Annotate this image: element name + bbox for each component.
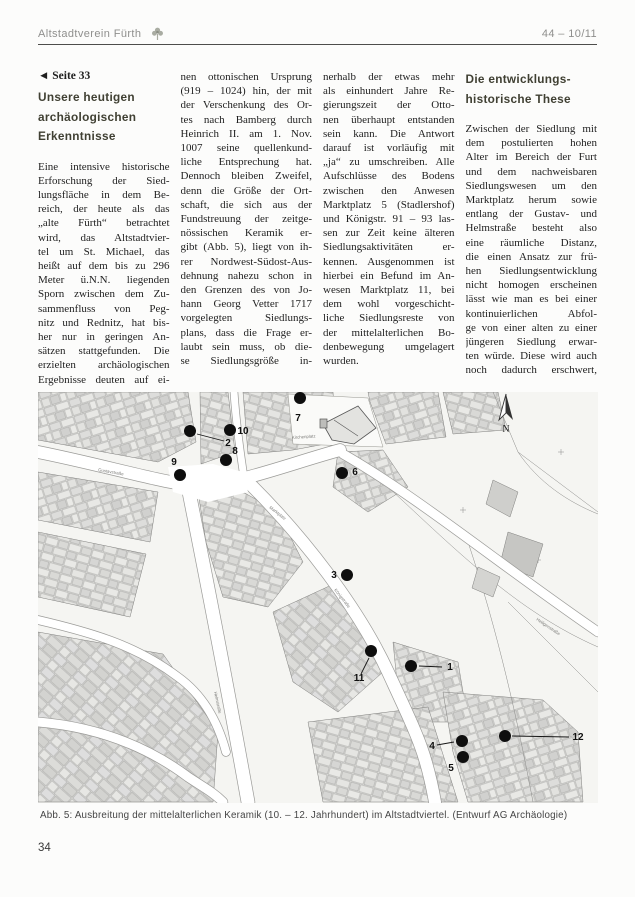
text-line: laubt sein muss, ob die- bbox=[181, 340, 313, 354]
text-line: und Königstr. 91 – 93 las- bbox=[323, 212, 455, 226]
page-header: Altstadtverein Fürth 44 – 10/11 bbox=[38, 24, 597, 45]
text-line: sätzen stattgefunden. Die bbox=[38, 344, 170, 358]
text-line: her nur in geringen An- bbox=[38, 330, 170, 344]
find-spot-dot bbox=[456, 735, 468, 747]
text-line: Marktplatz herum sowie bbox=[466, 193, 598, 207]
text-line: nicht homogen erscheinen bbox=[466, 278, 598, 292]
text-line: kontinuierlichen Abfol- bbox=[466, 307, 598, 321]
text-line: historische These bbox=[466, 90, 598, 110]
text-line: Erforschung der Sied- bbox=[38, 174, 170, 188]
find-spot-dot bbox=[184, 425, 196, 437]
text-line: und dem nachweisbaren bbox=[466, 165, 598, 179]
find-spot-number: 6 bbox=[352, 467, 358, 478]
column-3: nerhalb der etwas mehrals einhundert Jah… bbox=[323, 70, 455, 387]
text-line: als einhundert Jahre Re- bbox=[323, 84, 455, 98]
text-line: zwischen den Anwesen bbox=[323, 184, 455, 198]
text-line: wird, das Altstadtvier- bbox=[38, 231, 170, 245]
text-line: lässt wie man es bei einer bbox=[466, 292, 598, 306]
find-spot-number: 11 bbox=[354, 673, 365, 684]
find-spot-dot bbox=[220, 454, 232, 466]
text-line: darauf ist vorläufig mit bbox=[323, 141, 455, 155]
find-spot-dot bbox=[457, 751, 469, 763]
column-3-text: nerhalb der etwas mehrals einhundert Jah… bbox=[323, 70, 455, 368]
text-line: hen Siedlungsentwicklung bbox=[466, 264, 598, 278]
column-4: Die entwicklungs-historische These Zwisc… bbox=[466, 70, 598, 387]
find-spot-dot bbox=[365, 645, 377, 657]
text-line: ge von einer alten zu einer bbox=[466, 321, 598, 335]
text-line: Eine intensive historische bbox=[38, 160, 170, 174]
text-line: Zwischen der Siedlung mit bbox=[466, 122, 598, 136]
text-line: lungsfläche in dem Be- bbox=[38, 188, 170, 202]
section-heading: Die entwicklungs-historische These bbox=[466, 70, 598, 109]
find-spot-dot bbox=[336, 467, 348, 479]
find-spot-dot bbox=[405, 660, 417, 672]
text-line: noch dadurch erschwert, bbox=[466, 363, 598, 377]
column-2-text: nen ottonischen Ursprung(919 – 1024) hin… bbox=[181, 70, 313, 368]
text-line: ten würde. Diese wird auch bbox=[466, 349, 598, 363]
find-spot-number: 1 bbox=[447, 662, 453, 673]
article-heading: Unsere heutigenarchäologischenErkenntnis… bbox=[38, 88, 170, 147]
column-4-text: Zwischen der Siedlung mitdem postulierte… bbox=[466, 122, 598, 378]
text-line: liche Siedlungsreste von bbox=[323, 311, 455, 325]
text-line: vorgelegten Siedlungs- bbox=[181, 311, 313, 325]
text-line: hann Georg Vetter 1717 bbox=[181, 297, 313, 311]
map-svg: N GustavstraßeMarktplatzKönigstraßeHelms… bbox=[38, 392, 598, 803]
text-line: sein kann. Die Antwort bbox=[323, 127, 455, 141]
page-number: 34 bbox=[38, 842, 51, 854]
text-line: archäologischen bbox=[38, 108, 170, 128]
text-line: Dennoch bleiben Zweifel, bbox=[181, 169, 313, 183]
text-line: plans, dass die Frage er- bbox=[181, 326, 313, 340]
text-line: Sporn zwischen dem Zu- bbox=[38, 287, 170, 301]
find-spot-dot bbox=[341, 569, 353, 581]
text-line: Marktplatz 5 (Stadlershof) bbox=[323, 198, 455, 212]
text-line: sen zur Zeit keine älteren bbox=[323, 226, 455, 240]
text-line: nössischen Keramik er- bbox=[181, 226, 313, 240]
find-spot-number: 12 bbox=[572, 732, 584, 743]
text-line: Heinrich II. am 1. Nov. bbox=[181, 127, 313, 141]
text-line: nitz und Rednitz, hat bis- bbox=[38, 316, 170, 330]
text-line: kennen. Ausgenommen ist bbox=[323, 255, 455, 269]
find-spot-number: 2 bbox=[225, 438, 231, 449]
text-line: hierbei ein Befund im An- bbox=[323, 269, 455, 283]
text-line: se Siedlungsgröße in- bbox=[181, 354, 313, 368]
text-line: tel um St. Michael, das bbox=[38, 245, 170, 259]
text-line: Fundstreuung der zeitge- bbox=[181, 212, 313, 226]
text-line: entlang der Gustav- und bbox=[466, 207, 598, 221]
kleeblatt-logo-icon bbox=[151, 27, 164, 41]
text-line: tes nach Bamberg durch bbox=[181, 113, 313, 127]
text-line: nen ottonischen Ursprung bbox=[181, 70, 313, 84]
text-line: Erkenntnisse bbox=[38, 127, 170, 147]
text-line: denn die Größe der Ort- bbox=[181, 184, 313, 198]
column-1-text: Eine intensive historischeErforschung de… bbox=[38, 160, 170, 387]
figure-caption: Abb. 5: Ausbreitung der mittelalterliche… bbox=[40, 810, 597, 821]
find-spot-dot bbox=[224, 424, 236, 436]
excavation-map-figure: N GustavstraßeMarktplatzKönigstraßeHelms… bbox=[38, 392, 598, 803]
compass-label: N bbox=[502, 424, 509, 435]
text-line: wesen Marktplatz 11, bei bbox=[323, 283, 455, 297]
text-line: schaft, die sich aus der bbox=[181, 198, 313, 212]
text-line: Aufschlüsse des Bodens bbox=[323, 169, 455, 183]
text-line: den Grenzen des von Jo- bbox=[181, 283, 313, 297]
text-line: (919 – 1024) hin, der mit bbox=[181, 84, 313, 98]
text-line: Meter ü.N.N. liegenden bbox=[38, 273, 170, 287]
find-spot-number: 4 bbox=[429, 741, 435, 752]
text-line: Unsere heutigen bbox=[38, 88, 170, 108]
text-line: der mittelalterlichen Bo- bbox=[323, 326, 455, 340]
text-line: nen überhaupt entstanden bbox=[323, 113, 455, 127]
text-line: jüngeren Siedlung erwar- bbox=[466, 335, 598, 349]
text-line: der Verschenkung des Or- bbox=[181, 98, 313, 112]
find-spot-number: 7 bbox=[295, 413, 301, 424]
text-line: heißt auf dem bis zu 296 bbox=[38, 259, 170, 273]
find-spot-dot bbox=[499, 730, 511, 742]
text-line: erzielten archäologischen bbox=[38, 358, 170, 372]
journal-name: Altstadtverein Fürth bbox=[38, 28, 141, 40]
column-1: ◄ Seite 33 Unsere heutigenarchäologische… bbox=[38, 70, 170, 387]
text-line: liche Entsprechung hat. bbox=[181, 155, 313, 169]
text-line: dem wohl vorgeschicht- bbox=[323, 297, 455, 311]
text-line: Alter im Bereich der Furt bbox=[466, 150, 598, 164]
magazine-page: Altstadtverein Fürth 44 – 10/11 ◄ Seite … bbox=[0, 0, 635, 897]
find-spot-number: 3 bbox=[331, 570, 337, 581]
find-spot-dot bbox=[294, 392, 306, 404]
text-line: die einen Ansatz zur frü- bbox=[466, 250, 598, 264]
article-columns: ◄ Seite 33 Unsere heutigenarchäologische… bbox=[38, 70, 597, 387]
text-line: nerhalb der etwas mehr bbox=[323, 70, 455, 84]
text-line: dehnung nahezu schon in bbox=[181, 269, 313, 283]
find-spot-number: 5 bbox=[448, 763, 454, 774]
column-2: nen ottonischen Ursprung(919 – 1024) hin… bbox=[181, 70, 313, 387]
text-line: sammenfluss von Peg- bbox=[38, 302, 170, 316]
text-line: gibt (Abb. 5), liegt von ih- bbox=[181, 240, 313, 254]
text-line: eine räumliche Distanz, bbox=[466, 236, 598, 250]
text-line: denbewegung umgelagert bbox=[323, 340, 455, 354]
text-line: Siedlungswesen um den bbox=[466, 179, 598, 193]
find-spot-dot bbox=[174, 469, 186, 481]
text-line: 1007 seine quellenkund- bbox=[181, 141, 313, 155]
continued-from-ref: ◄ Seite 33 bbox=[38, 70, 170, 82]
text-line: Ergebnisse deuten auf ei- bbox=[38, 373, 170, 387]
text-line: reich, der heute als das bbox=[38, 202, 170, 216]
find-spot-number: 9 bbox=[171, 457, 177, 468]
text-line: dem postulierten hohen bbox=[466, 136, 598, 150]
text-line: Siedlungsaktivitäten er- bbox=[323, 240, 455, 254]
text-line: rer Nordwest-Südost-Aus- bbox=[181, 255, 313, 269]
text-line: gierungszeit der Otto- bbox=[323, 98, 455, 112]
text-line: Helmstraße besteht also bbox=[466, 221, 598, 235]
find-spot-number: 10 bbox=[237, 426, 249, 437]
text-line: Die entwicklungs- bbox=[466, 70, 598, 90]
text-line: wurden. bbox=[323, 354, 455, 368]
issue-number: 44 – 10/11 bbox=[542, 28, 597, 40]
text-line: „alte Fürth“ betrachtet bbox=[38, 216, 170, 230]
text-line: „ja“ zu umschreiben. Alle bbox=[323, 155, 455, 169]
find-spot-number: 8 bbox=[232, 446, 238, 457]
